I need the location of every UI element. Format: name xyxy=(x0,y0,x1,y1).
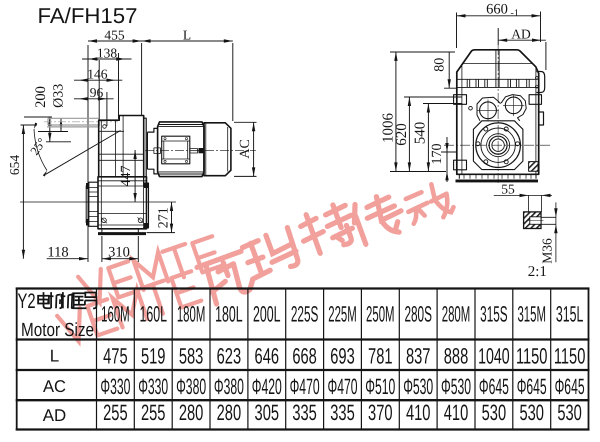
svg-text:80: 80 xyxy=(433,58,448,72)
svg-text:310: 310 xyxy=(108,245,130,261)
svg-text:Φ330: Φ330 xyxy=(100,374,130,399)
svg-text:540: 540 xyxy=(413,122,429,145)
svg-text:255: 255 xyxy=(141,400,166,425)
svg-text:AC: AC xyxy=(43,377,66,396)
svg-text:837: 837 xyxy=(406,343,431,368)
svg-text:2:1: 2:1 xyxy=(528,264,547,280)
svg-text:Φ530: Φ530 xyxy=(441,374,471,399)
svg-text:AD: AD xyxy=(43,406,67,425)
svg-text:255: 255 xyxy=(103,400,128,425)
svg-text:Φ470: Φ470 xyxy=(328,374,358,399)
svg-text:200L: 200L xyxy=(253,301,281,326)
svg-text:Φ380: Φ380 xyxy=(176,374,206,399)
svg-text:170: 170 xyxy=(430,144,445,165)
svg-text:Φ380: Φ380 xyxy=(214,374,244,399)
svg-text:Φ330: Φ330 xyxy=(138,374,168,399)
svg-text:180L: 180L xyxy=(215,301,243,326)
svg-text:370: 370 xyxy=(368,400,393,425)
svg-text:250M: 250M xyxy=(366,301,395,326)
svg-text:668: 668 xyxy=(292,343,317,368)
svg-text:55: 55 xyxy=(501,181,515,196)
svg-text:96: 96 xyxy=(90,85,104,100)
svg-text:Ø33: Ø33 xyxy=(52,84,67,108)
svg-text:530: 530 xyxy=(519,400,544,425)
svg-text:654: 654 xyxy=(7,155,22,176)
svg-text:Φ645: Φ645 xyxy=(517,374,547,399)
svg-text:146: 146 xyxy=(87,66,108,81)
svg-text:271: 271 xyxy=(156,207,171,228)
svg-text:888: 888 xyxy=(444,343,469,368)
svg-text:530: 530 xyxy=(557,400,582,425)
svg-text:160M: 160M xyxy=(101,301,130,326)
svg-text:M36: M36 xyxy=(540,238,555,264)
svg-text:620: 620 xyxy=(394,123,410,146)
svg-text:315M: 315M xyxy=(517,301,546,326)
svg-text:Φ530: Φ530 xyxy=(403,374,433,399)
svg-text:530: 530 xyxy=(482,400,507,425)
svg-text:305: 305 xyxy=(255,400,280,425)
svg-text:Φ645: Φ645 xyxy=(555,374,585,399)
svg-text:335: 335 xyxy=(330,400,355,425)
svg-text:AD: AD xyxy=(511,26,531,41)
svg-text:Y2: Y2 xyxy=(18,290,36,313)
svg-text:180M: 180M xyxy=(177,301,206,326)
svg-text:Φ510: Φ510 xyxy=(365,374,395,399)
svg-text:200: 200 xyxy=(33,86,49,108)
svg-text:Φ645: Φ645 xyxy=(479,374,509,399)
svg-text:623: 623 xyxy=(217,343,242,368)
svg-text:280: 280 xyxy=(179,400,204,425)
svg-text:519: 519 xyxy=(141,343,166,368)
svg-text:315L: 315L xyxy=(556,301,584,326)
svg-text:455: 455 xyxy=(104,27,125,42)
svg-text:160L: 160L xyxy=(139,301,167,326)
svg-text:Motor Size: Motor Size xyxy=(21,320,94,341)
svg-text:280M: 280M xyxy=(442,301,471,326)
svg-text:280: 280 xyxy=(217,400,242,425)
svg-text:410: 410 xyxy=(406,400,431,425)
svg-text:280S: 280S xyxy=(404,301,432,326)
svg-text:660: 660 xyxy=(486,2,508,18)
svg-text:1040: 1040 xyxy=(478,343,510,368)
svg-text:118: 118 xyxy=(47,245,68,261)
svg-text:1150: 1150 xyxy=(516,343,548,368)
svg-text:138: 138 xyxy=(97,45,118,60)
svg-text:646: 646 xyxy=(255,343,280,368)
svg-text:1150: 1150 xyxy=(554,343,586,368)
svg-text:FA/FH157: FA/FH157 xyxy=(38,4,138,28)
svg-text:781: 781 xyxy=(368,343,393,368)
svg-text:693: 693 xyxy=(330,343,355,368)
svg-text:335: 335 xyxy=(292,400,317,425)
svg-text:225M: 225M xyxy=(328,301,357,326)
svg-text:410: 410 xyxy=(444,400,469,425)
svg-text:L: L xyxy=(50,347,59,366)
svg-text:475: 475 xyxy=(103,343,128,368)
svg-text:-1: -1 xyxy=(511,8,519,19)
svg-text:Φ470: Φ470 xyxy=(290,374,320,399)
svg-text:447: 447 xyxy=(119,166,134,187)
svg-text:225S: 225S xyxy=(291,301,319,326)
svg-text:Φ420: Φ420 xyxy=(252,374,282,399)
svg-text:L: L xyxy=(183,27,191,42)
svg-text:AC: AC xyxy=(238,139,253,158)
svg-text:315S: 315S xyxy=(480,301,508,326)
svg-text:583: 583 xyxy=(179,343,204,368)
